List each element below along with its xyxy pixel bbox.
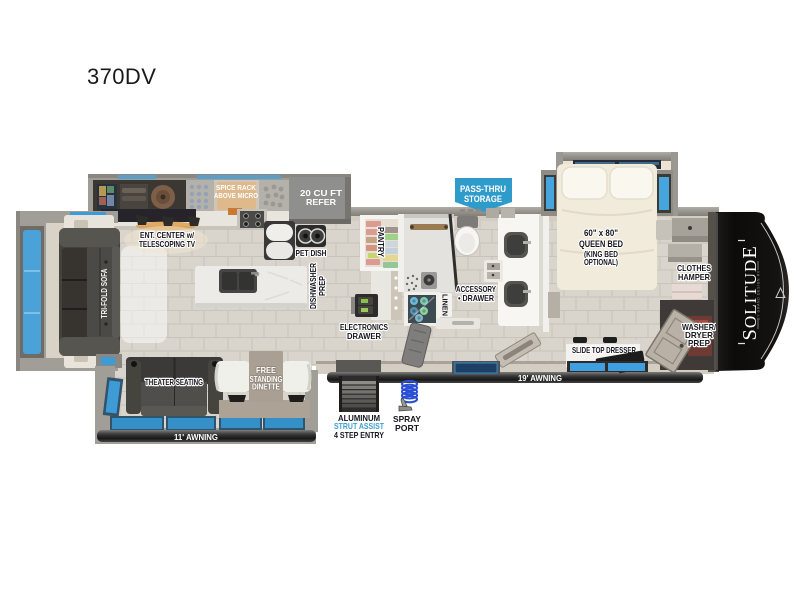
- svg-text:19' AWNING: 19' AWNING: [518, 373, 562, 383]
- svg-text:STORAGE: STORAGE: [464, 194, 502, 204]
- svg-text:THEATER SEATING: THEATER SEATING: [145, 377, 203, 387]
- svg-text:PREP: PREP: [317, 276, 327, 296]
- svg-text:TELESCOPING TV: TELESCOPING TV: [139, 239, 195, 249]
- svg-text:• DRAWER: • DRAWER: [458, 293, 494, 303]
- svg-text:60" x 80": 60" x 80": [584, 227, 618, 238]
- svg-text:PANTRY: PANTRY: [376, 227, 385, 258]
- svg-text:DRAWER: DRAWER: [347, 331, 382, 341]
- svg-text:4 STEP ENTRY: 4 STEP ENTRY: [334, 430, 384, 440]
- svg-text:PORT: PORT: [395, 423, 420, 433]
- svg-text:OPTIONAL): OPTIONAL): [584, 258, 618, 267]
- svg-text:QUEEN BED: QUEEN BED: [579, 238, 623, 249]
- svg-text:BY GRAND DESIGN RV: BY GRAND DESIGN RV: [757, 270, 761, 320]
- svg-text:11' AWNING: 11' AWNING: [174, 432, 218, 442]
- svg-text:PASS-THRU: PASS-THRU: [460, 184, 506, 194]
- svg-text:370DV: 370DV: [87, 64, 156, 89]
- svg-text:TRI-FOLD SOFA: TRI-FOLD SOFA: [99, 269, 109, 319]
- svg-text:REFER: REFER: [306, 198, 336, 207]
- svg-text:HAMPER: HAMPER: [678, 272, 710, 282]
- svg-text:PREP: PREP: [688, 338, 710, 348]
- svg-text:LINEN: LINEN: [441, 294, 450, 316]
- svg-text:DINETTE: DINETTE: [252, 382, 280, 392]
- svg-text:20 CU FT: 20 CU FT: [300, 189, 342, 198]
- svg-text:ABOVE MICRO: ABOVE MICRO: [214, 191, 258, 200]
- svg-text:PET DISH: PET DISH: [296, 248, 327, 258]
